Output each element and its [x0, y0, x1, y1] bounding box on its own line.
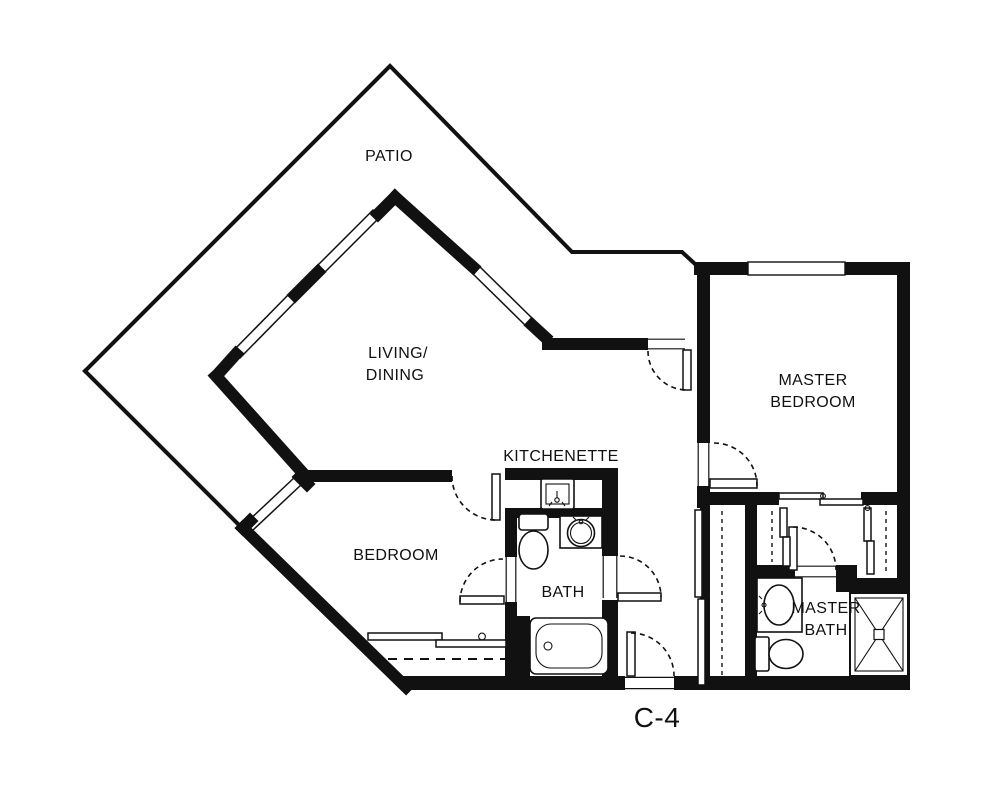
window-master-bedroom	[748, 262, 845, 275]
kitchen-sink-icon	[541, 479, 574, 509]
wall-bath-right-upper	[602, 468, 618, 556]
door-bath-hall	[618, 593, 661, 601]
wall-bedroom-top	[298, 470, 452, 482]
label-living-line1: LIVING/	[368, 345, 428, 362]
label-patio: PATIO	[365, 148, 413, 165]
bathtub-icon	[530, 618, 608, 674]
window-nw-1	[324, 217, 381, 274]
label-master-bedroom-line1: MASTER	[778, 372, 847, 389]
bedroom-closet-door	[368, 633, 442, 640]
wall-ne-apex	[395, 197, 473, 267]
linen-closet-door	[780, 508, 787, 537]
wall-closet3-bottom	[845, 578, 910, 592]
door-bedroom-swing	[452, 476, 496, 520]
floor-plan-c4: PATIO LIVING/ DINING KITCHENETTE BEDROOM…	[0, 0, 1000, 797]
vanity-sink-icon	[560, 516, 602, 548]
wall-nw-stub	[295, 272, 318, 295]
master-wardrobe-door	[820, 499, 863, 505]
linen-closet-door	[783, 537, 790, 566]
label-master-bedroom-line2: BEDROOM	[770, 394, 855, 411]
patio-edge-south	[85, 371, 243, 529]
hall-closet-door	[695, 510, 702, 597]
label-kitchenette: KITCHENETTE	[503, 448, 619, 465]
label-master-bath-line2: BATH	[804, 622, 847, 639]
door-master-bath-swing	[793, 527, 836, 570]
master-wardrobe-door	[779, 493, 823, 499]
label-bedroom: BEDROOM	[353, 547, 438, 564]
window-bedroom	[253, 484, 303, 531]
label-bath: BATH	[541, 584, 584, 601]
closet-door-handle-icon	[479, 633, 486, 640]
exterior-walls	[216, 197, 545, 687]
master-closet-door	[867, 541, 874, 574]
wall-living-top	[542, 338, 648, 350]
plan-code: C-4	[634, 702, 681, 733]
hall-closet-door	[698, 599, 705, 685]
door-living-hall-swing	[648, 351, 687, 390]
door-bedroom	[492, 474, 500, 520]
door-bath-hall-swing	[620, 556, 661, 597]
wall-sw-living	[216, 376, 302, 472]
patio-edge	[85, 66, 694, 371]
window-bedroom	[246, 477, 296, 524]
window-nw-2	[233, 293, 291, 352]
floor-plan-page: PATIO LIVING/ DINING KITCHENETTE BEDROOM…	[0, 0, 1000, 797]
master-toilet-icon	[755, 637, 803, 671]
wall-master-left	[697, 262, 710, 443]
window-nw-1	[317, 210, 374, 267]
wall-bath-left-upper	[505, 508, 517, 558]
door-entry	[627, 632, 635, 676]
wall-ne-stub	[532, 325, 545, 337]
door-living-hall	[683, 350, 691, 390]
window-ne	[478, 265, 536, 322]
wall-master-bottom-right	[861, 492, 910, 505]
door-entry-swing	[631, 633, 674, 676]
bedroom-closet-door	[436, 640, 506, 647]
label-master-bath-line1: MASTER	[791, 600, 860, 617]
door-master-bedroom	[710, 479, 757, 488]
wall-master-bath-top	[745, 565, 795, 578]
toilet-icon	[519, 514, 548, 569]
label-living-line2: DINING	[366, 367, 424, 384]
wall-tub-corner	[505, 616, 530, 676]
window-nw-2	[240, 300, 298, 359]
master-closet-door	[864, 508, 871, 541]
window-ne	[471, 272, 529, 329]
wall-master-bottom-left	[697, 492, 779, 505]
wall-nw-corner	[218, 354, 236, 374]
door-bath-bedroom	[460, 596, 504, 604]
